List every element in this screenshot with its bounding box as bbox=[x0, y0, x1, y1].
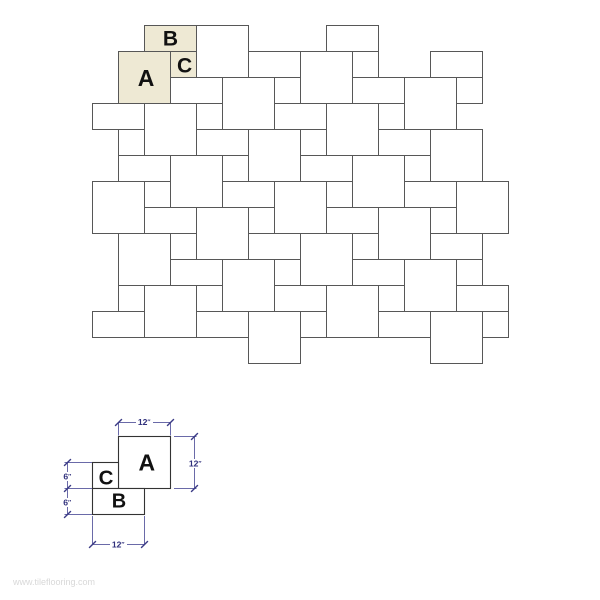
svg-text:A: A bbox=[138, 450, 155, 476]
svg-text:C: C bbox=[99, 466, 114, 489]
svg-text:12″: 12″ bbox=[112, 539, 125, 549]
svg-text:www.tileflooring.com: www.tileflooring.com bbox=[12, 577, 95, 587]
svg-text:A: A bbox=[138, 65, 155, 91]
svg-text:B: B bbox=[163, 28, 178, 51]
svg-text:B: B bbox=[112, 491, 126, 513]
svg-text:6″: 6″ bbox=[63, 497, 71, 507]
svg-text:12″: 12″ bbox=[189, 459, 202, 469]
svg-text:C: C bbox=[177, 55, 192, 78]
svg-text:12″: 12″ bbox=[138, 417, 151, 427]
